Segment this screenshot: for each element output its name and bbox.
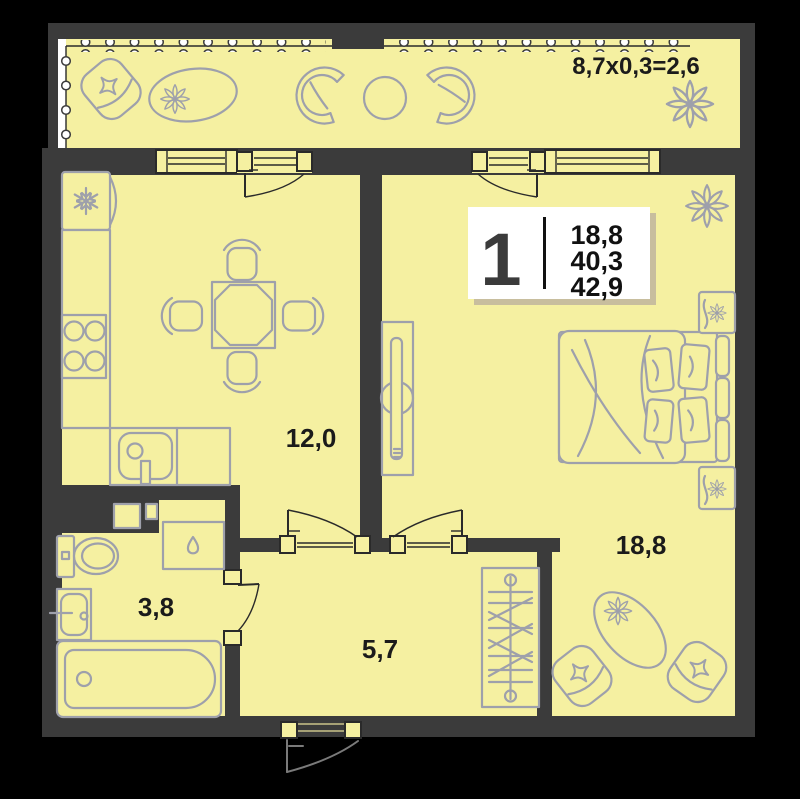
room-label-bedroom: 18,8: [616, 530, 667, 560]
info-box-divider: [543, 217, 546, 289]
wall-divider-living-bedroom: [360, 148, 382, 552]
window-kitchen: [156, 150, 237, 173]
info-box: 1 18,8 40,3 42,9: [468, 207, 656, 305]
pillow: [678, 397, 710, 443]
tv-cabinet: [381, 322, 413, 475]
wall-bottom: [42, 716, 755, 737]
balcony-dimension-label: 8,7x0,3=2,6: [572, 53, 699, 80]
fridge: [62, 172, 116, 230]
headboard: [716, 336, 729, 461]
washbasin: [50, 589, 91, 640]
balcony-wall-top: [48, 23, 755, 39]
balcony-wall-left: [48, 23, 58, 148]
toilet: [57, 536, 118, 577]
bathtub: [57, 641, 221, 717]
pillow: [644, 348, 674, 392]
balcony: 8,7x0,3=2,6: [48, 23, 755, 148]
nightstand-bottom: [699, 467, 735, 509]
total-area-value: 42,9: [570, 272, 623, 302]
room-label-kitchen-living: 12,0: [286, 423, 337, 453]
room-label-bathroom: 3,8: [138, 592, 174, 622]
stove: [62, 315, 106, 378]
floor-plan: 8,7x0,3=2,6: [0, 0, 800, 799]
pillow: [678, 344, 710, 390]
washing-machine: [163, 522, 224, 569]
plumbing-shaft: [62, 500, 159, 533]
wardrobe: [482, 568, 539, 707]
kitchen-sink-counter: [110, 428, 230, 485]
balcony-wall-post: [332, 39, 384, 49]
window-bedroom: [545, 150, 660, 173]
balcony-wall-right: [740, 23, 755, 148]
wall-right: [735, 148, 755, 737]
room-label-hallway: 5,7: [362, 634, 398, 664]
pillow: [644, 399, 674, 443]
nightstand-top: [699, 292, 735, 333]
wall-kitchen-bathroom: [42, 485, 240, 500]
rooms-count: 1: [480, 218, 521, 301]
double-bed: [559, 331, 729, 463]
